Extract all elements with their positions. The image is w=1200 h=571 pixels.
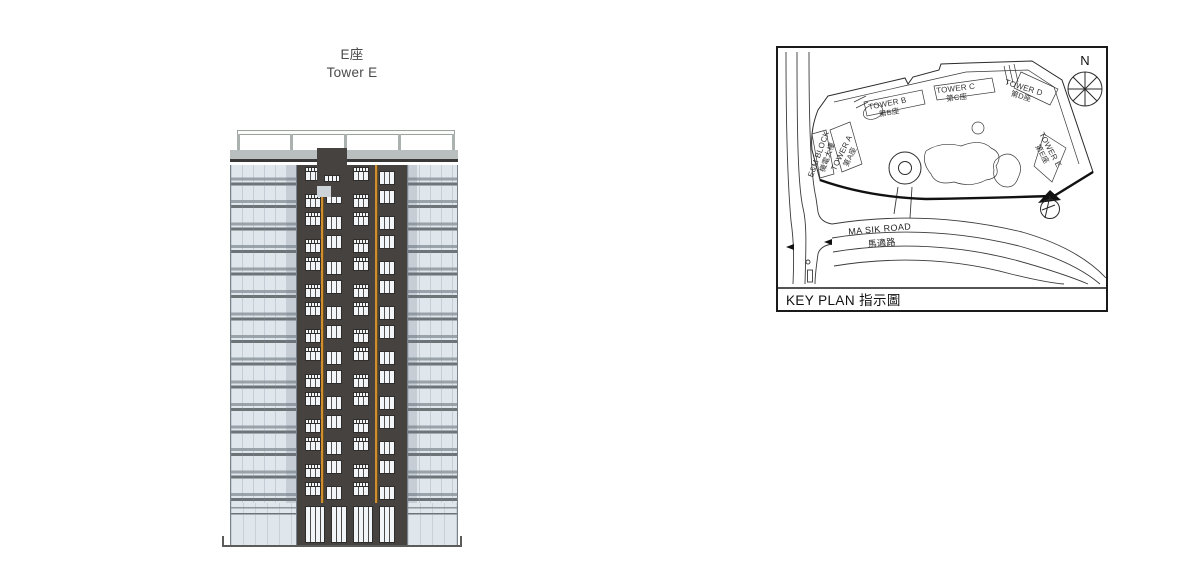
- core-window: [379, 235, 395, 249]
- window-transom: [306, 258, 320, 262]
- ground-floor-window: [331, 506, 347, 543]
- window-transom: [354, 465, 368, 469]
- core-window: [353, 374, 369, 388]
- window-transom: [354, 393, 368, 397]
- window-transom: [354, 348, 368, 352]
- floor-row: [297, 278, 407, 301]
- floor-row: [297, 165, 407, 188]
- core-window: [353, 437, 369, 451]
- key-plan-caption: KEY PLAN 指示圖: [786, 293, 901, 308]
- floor-row: [297, 188, 407, 211]
- core-window: [379, 415, 395, 429]
- window-transom: [306, 213, 320, 217]
- ground-line: [222, 545, 462, 547]
- window-transom: [354, 330, 368, 334]
- window-transom: [306, 420, 320, 424]
- wing-ground-floor-right: [407, 503, 458, 545]
- core-window: [326, 441, 342, 455]
- core-window: [305, 302, 321, 316]
- window-transom: [354, 258, 368, 262]
- floor-row: [297, 345, 407, 368]
- ground-floor-core: [297, 503, 407, 545]
- window-transom: [354, 213, 368, 217]
- floor-row: [297, 300, 407, 323]
- wing-ground-floor-left: [230, 503, 297, 545]
- core-window: [305, 284, 321, 298]
- floor-row: [297, 390, 407, 413]
- ground-line-tick-right: [460, 536, 462, 546]
- roof-block-base: [317, 186, 331, 197]
- ground-floor-window: [379, 506, 395, 543]
- core-window: [353, 257, 369, 271]
- core-window: [305, 257, 321, 271]
- curtain-wall-wing-right: [407, 165, 458, 503]
- core-window: [326, 486, 342, 500]
- core-window: [305, 374, 321, 388]
- floor-row: [297, 210, 407, 233]
- core-window: [379, 216, 395, 230]
- tower-name-en: Tower E: [232, 64, 472, 82]
- tower-name-zh: E座: [232, 46, 472, 64]
- window-transom: [354, 483, 368, 487]
- window-transom: [354, 195, 368, 199]
- ground-floor-window: [353, 506, 373, 543]
- core-window: [353, 239, 369, 253]
- floor-row: [297, 368, 407, 391]
- core-window: [305, 419, 321, 433]
- central-core: [297, 165, 407, 545]
- core-window: [326, 415, 342, 429]
- core-window: [353, 464, 369, 478]
- core-window: [353, 392, 369, 406]
- core-window: [379, 261, 395, 275]
- core-window: [326, 235, 342, 249]
- floor-row: [297, 255, 407, 278]
- core-window: [353, 347, 369, 361]
- window-transom: [306, 303, 320, 307]
- core-window: [353, 419, 369, 433]
- core-window: [353, 482, 369, 496]
- core-window: [305, 347, 321, 361]
- window-transom: [306, 375, 320, 379]
- core-window: [379, 171, 395, 185]
- floor-row: [297, 233, 407, 256]
- core-window: [353, 212, 369, 226]
- core-window: [379, 351, 395, 365]
- window-transom: [354, 240, 368, 244]
- core-window: [353, 329, 369, 343]
- core-window: [379, 486, 395, 500]
- window-transom: [306, 240, 320, 244]
- core-window: [353, 167, 369, 181]
- window-transom: [354, 375, 368, 379]
- core-window: [379, 370, 395, 384]
- svg-text:N: N: [1080, 53, 1089, 68]
- window-transom: [354, 303, 368, 307]
- building-elevation-drawing: [222, 125, 468, 561]
- window-transom: [354, 168, 368, 172]
- core-window: [353, 302, 369, 316]
- floor-row: [297, 413, 407, 436]
- core-window: [326, 460, 342, 474]
- core-window: [326, 325, 342, 339]
- roof-block-window: [324, 175, 340, 182]
- key-plan-map: MA SIK ROAD 馬適路 E&M BLOCK 機電大樓 TOWER A 第…: [776, 46, 1108, 312]
- core-window: [379, 280, 395, 294]
- core-window: [353, 194, 369, 208]
- core-window: [353, 284, 369, 298]
- window-transom: [354, 285, 368, 289]
- core-window: [326, 261, 342, 275]
- window-transom: [306, 393, 320, 397]
- roof-plant-block: [317, 148, 347, 197]
- core-window: [379, 306, 395, 320]
- window-transom: [306, 483, 320, 487]
- core-window: [326, 306, 342, 320]
- page: { "title": { "zh": "E座", "en": "Tower E"…: [0, 0, 1200, 571]
- floor-row: [297, 480, 407, 503]
- core-window: [326, 370, 342, 384]
- core-window: [326, 351, 342, 365]
- core-window: [379, 325, 395, 339]
- window-transom: [306, 465, 320, 469]
- core-window: [326, 216, 342, 230]
- core-window: [305, 239, 321, 253]
- floor-row: [297, 323, 407, 346]
- curtain-wall-wing-left: [230, 165, 297, 503]
- floor-row: [297, 435, 407, 458]
- window-transom: [306, 348, 320, 352]
- core-window: [326, 280, 342, 294]
- core-window: [305, 437, 321, 451]
- core-window: [305, 212, 321, 226]
- elevation-title: E座 Tower E: [232, 46, 472, 82]
- core-window: [326, 396, 342, 410]
- core-window: [379, 441, 395, 455]
- ground-floor-window: [305, 506, 325, 543]
- core-window: [305, 392, 321, 406]
- core-window-grid: [297, 165, 407, 503]
- floor-row: [297, 458, 407, 481]
- window-transom: [306, 438, 320, 442]
- ground-line-tick-left: [222, 536, 224, 546]
- core-window: [379, 396, 395, 410]
- window-transom: [354, 438, 368, 442]
- window-transom: [354, 420, 368, 424]
- core-window: [305, 329, 321, 343]
- core-window: [379, 460, 395, 474]
- window-transom: [306, 330, 320, 334]
- key-plan-panel: MA SIK ROAD 馬適路 E&M BLOCK 機電大樓 TOWER A 第…: [776, 46, 1108, 312]
- window-transom: [306, 285, 320, 289]
- core-window: [305, 482, 321, 496]
- core-window: [305, 464, 321, 478]
- core-window: [379, 190, 395, 204]
